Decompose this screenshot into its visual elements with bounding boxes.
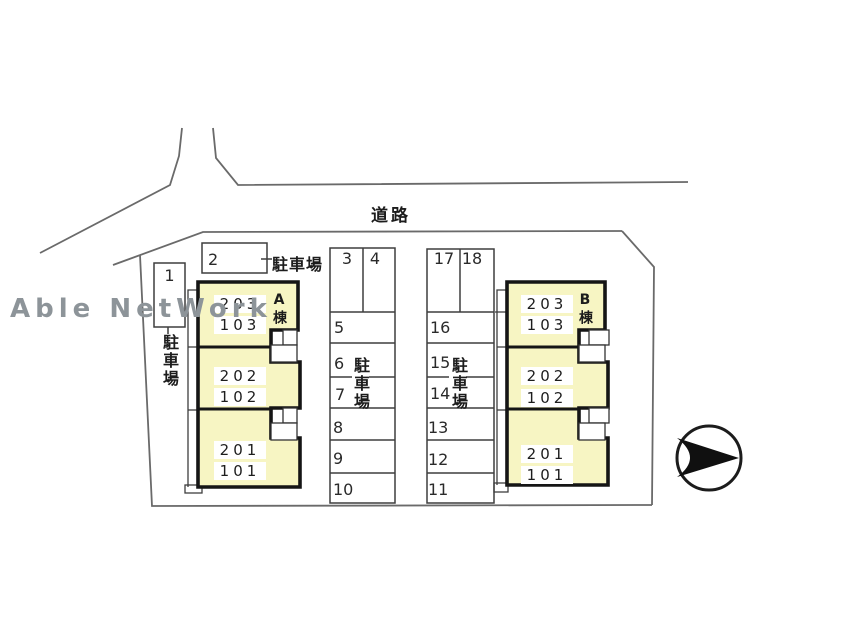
- parking-area-label-center: 駐車場: [352, 357, 369, 411]
- stall-label-15: 15: [430, 354, 450, 371]
- stall-label-9: 9: [333, 450, 343, 467]
- road-lines: [40, 128, 688, 265]
- parking-area-label-top: 駐車場: [272, 251, 323, 275]
- stall-label-4: 4: [365, 250, 385, 267]
- parking-area-label-west: 駐車場: [161, 334, 178, 390]
- building-a-unit-201: 201: [214, 441, 266, 459]
- stall-label-7: 7: [335, 386, 345, 403]
- building-a-unit-202: 202: [214, 367, 266, 385]
- stall-label-5: 5: [334, 319, 344, 336]
- stall-label-10: 10: [333, 481, 353, 498]
- watermark: Able NetWork: [10, 294, 272, 324]
- stall-label-2: 2: [208, 251, 218, 268]
- road-label: 道路: [371, 201, 411, 226]
- stall-label-3: 3: [337, 250, 357, 267]
- stall-label-13: 13: [428, 419, 448, 436]
- site-plan: 道路 1 2 3 4 5 6 7 8 9 10 11 12 13 14 15 1…: [0, 0, 846, 634]
- site-boundary-right: [622, 231, 654, 505]
- building-b-unit-201: 201: [521, 445, 573, 463]
- road-edge-northwest: [40, 128, 182, 253]
- building-a-name: A棟: [270, 292, 288, 332]
- stall-label-12: 12: [428, 451, 448, 468]
- building-b-unit-101: 101: [521, 466, 573, 484]
- building-b-unit-102: 102: [521, 389, 573, 407]
- stall-label-16: 16: [430, 319, 450, 336]
- building-a-unit-101: 101: [214, 462, 266, 480]
- parking-area-label-east: 駐車場: [450, 357, 467, 411]
- building-b-unit-203: 203: [521, 295, 573, 313]
- stall-label-14: 14: [430, 385, 450, 402]
- compass-north-arrow-icon: [677, 426, 741, 490]
- stall-label-18: 18: [461, 250, 483, 267]
- road-edge-upper: [213, 128, 688, 185]
- stall-label-1: 1: [154, 267, 185, 284]
- stall-label-17: 17: [433, 250, 455, 267]
- stall-label-11: 11: [428, 481, 448, 498]
- stall-label-8: 8: [333, 419, 343, 436]
- stall-label-6: 6: [334, 355, 344, 372]
- building-b-name: B棟: [576, 292, 594, 332]
- building-b-unit-103: 103: [521, 316, 573, 334]
- building-a-unit-102: 102: [214, 388, 266, 406]
- building-b-unit-202: 202: [521, 367, 573, 385]
